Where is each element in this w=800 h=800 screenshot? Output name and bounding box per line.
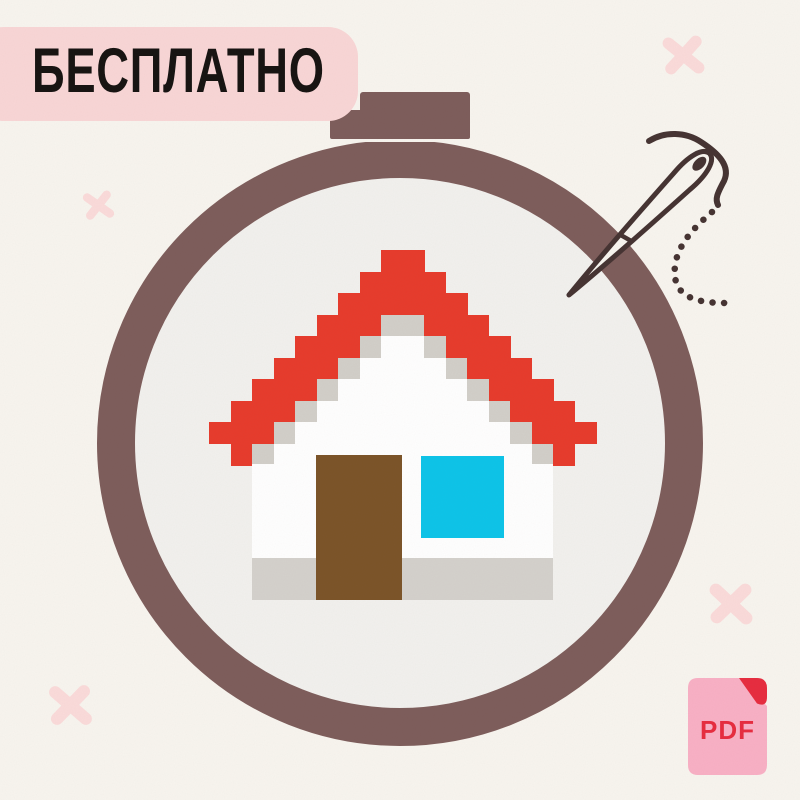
x-stitch-icon bbox=[81, 188, 117, 224]
thread-curve bbox=[649, 134, 726, 205]
cross-stitch-mark bbox=[46, 681, 94, 729]
hoop-ring bbox=[97, 140, 703, 746]
x-stitch-icon bbox=[660, 32, 707, 79]
cross-stitch-mark bbox=[707, 580, 755, 628]
cross-stitch-mark bbox=[660, 32, 707, 79]
hoop-screw-base bbox=[330, 110, 470, 139]
pdf-badge-label: PDF bbox=[688, 715, 767, 746]
title-badge-label: БЕСПЛАТНО bbox=[32, 35, 325, 107]
x-stitch-icon bbox=[46, 681, 94, 729]
hoop-screw-top bbox=[360, 92, 470, 112]
cross-stitch-mark bbox=[81, 188, 117, 224]
x-stitch-icon bbox=[707, 580, 755, 628]
pdf-badge: PDF bbox=[688, 678, 767, 775]
thread-dotted-trail bbox=[675, 212, 725, 303]
needle-eye bbox=[690, 154, 709, 173]
artwork-canvas: БЕСПЛАТНО PDF bbox=[0, 0, 800, 800]
title-badge: БЕСПЛАТНО bbox=[0, 27, 358, 121]
